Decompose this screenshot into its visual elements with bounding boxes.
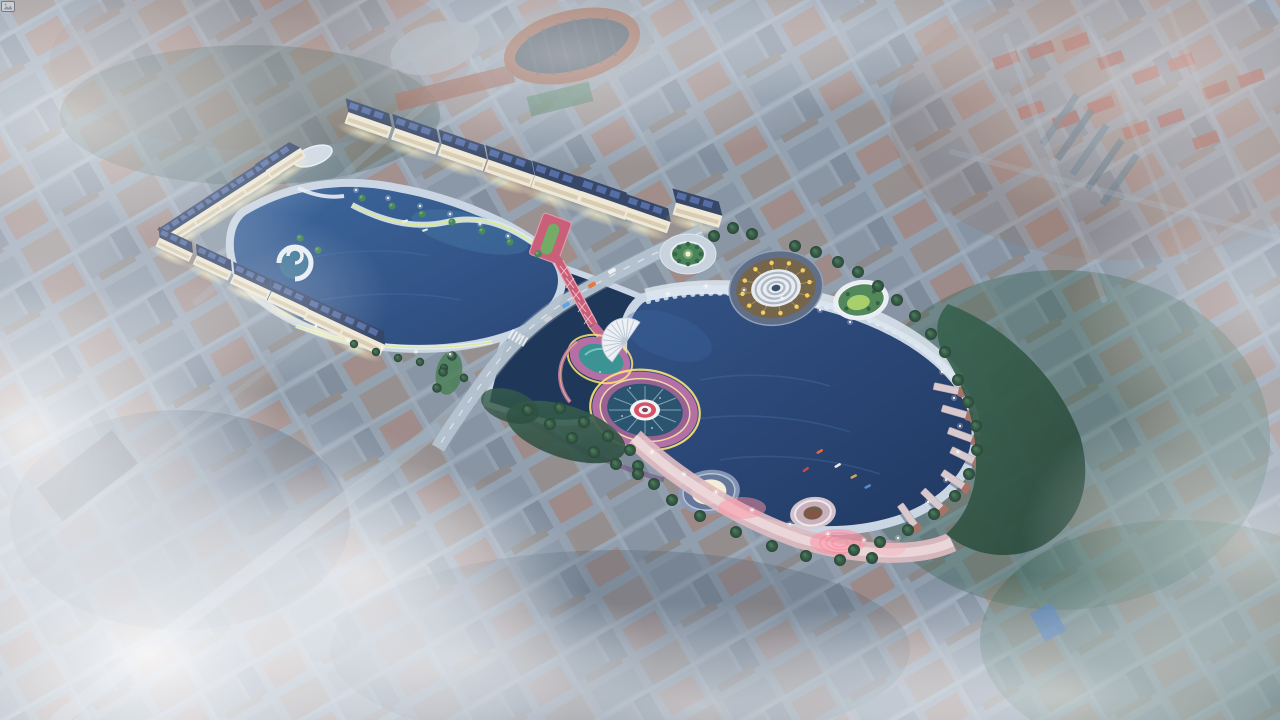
haze-veil: [0, 0, 1280, 720]
aerial-render-canvas: [0, 0, 1280, 720]
fog-layer: [0, 0, 1280, 720]
image-placeholder-icon: [1, 1, 15, 12]
aerial-render: [0, 0, 1280, 720]
image-placeholder-glyph: [1, 1, 15, 12]
